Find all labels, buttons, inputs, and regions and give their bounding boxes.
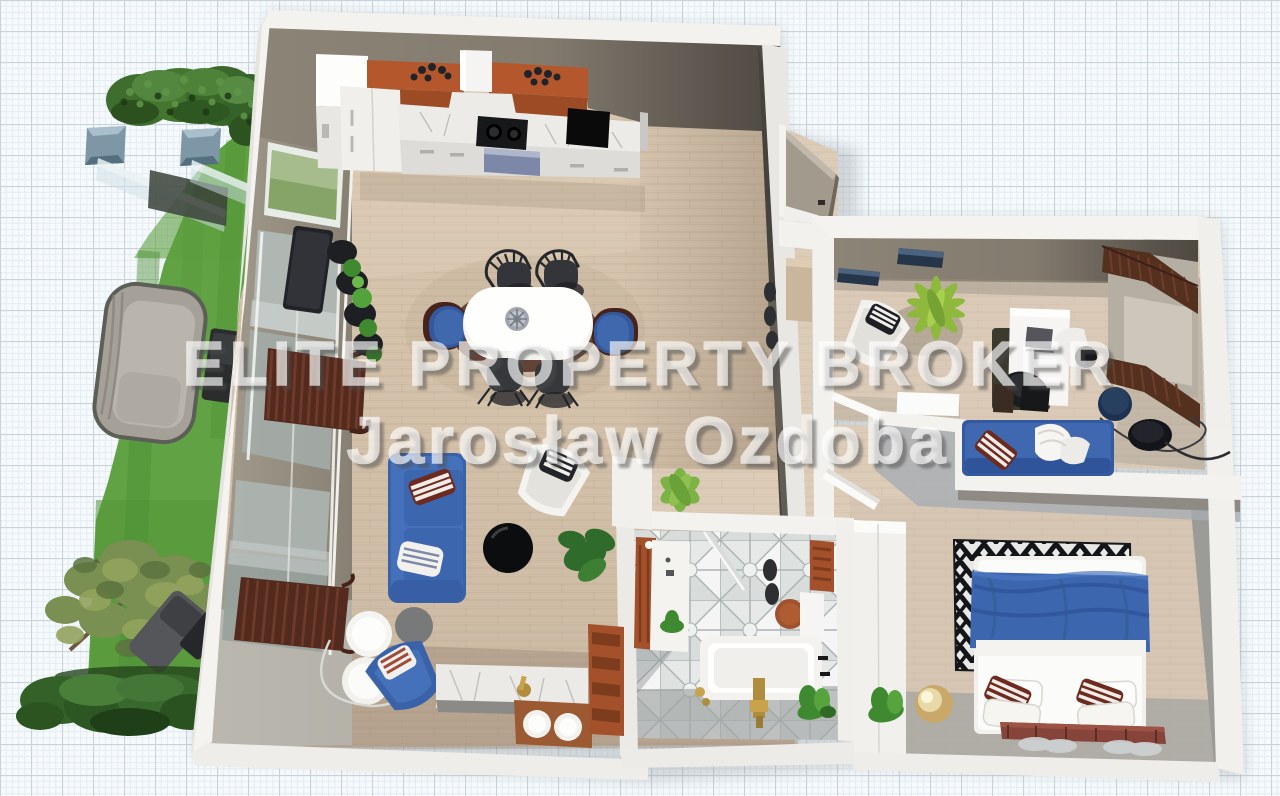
svg-text:Jarosław Ozdoba: Jarosław Ozdoba xyxy=(347,403,950,477)
svg-text:ELITE PROPERTY BROKER: ELITE PROPERTY BROKER xyxy=(183,330,1117,399)
